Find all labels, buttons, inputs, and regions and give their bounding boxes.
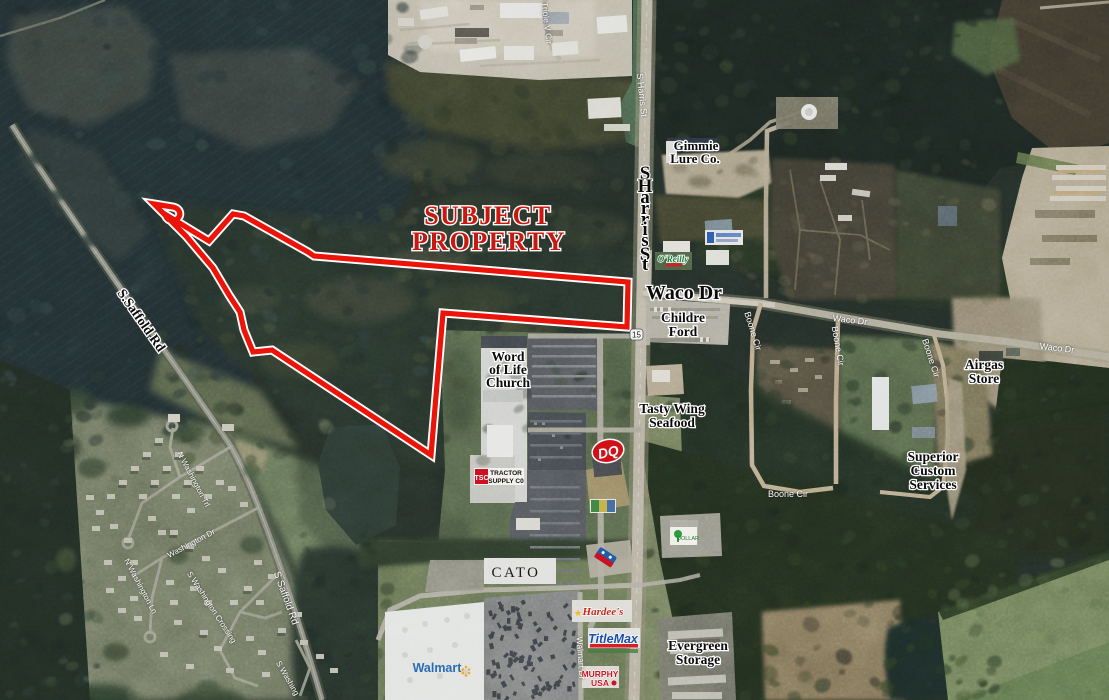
svg-text:Custom: Custom xyxy=(910,463,956,478)
svg-text:Ford: Ford xyxy=(669,324,698,339)
svg-text:SUPPLY C0: SUPPLY C0 xyxy=(488,478,524,485)
svg-text:TSC: TSC xyxy=(475,475,489,482)
svg-text:Hardee's: Hardee's xyxy=(582,606,624,618)
svg-text:t: t xyxy=(642,254,649,275)
svg-text:USA: USA xyxy=(591,678,609,688)
svg-text:Evergreen: Evergreen xyxy=(668,638,728,653)
svg-text:Tasty Wing: Tasty Wing xyxy=(639,401,705,416)
svg-text:Church: Church xyxy=(486,375,531,390)
svg-text:Storage: Storage xyxy=(676,652,720,667)
svg-text:Services: Services xyxy=(909,477,956,492)
svg-text:Childre: Childre xyxy=(661,310,705,325)
svg-text:Walmart: Walmart xyxy=(413,661,463,675)
svg-text:Airgas: Airgas xyxy=(965,357,1003,372)
svg-text:15: 15 xyxy=(632,331,641,340)
svg-text:TitleMax: TitleMax xyxy=(588,632,639,646)
svg-text:O'Reilly: O'Reilly xyxy=(658,254,689,264)
svg-text:SUBJECT: SUBJECT xyxy=(424,201,552,230)
svg-text:TRACTOR: TRACTOR xyxy=(490,470,522,477)
svg-text:Store: Store xyxy=(969,371,1000,386)
svg-text:DOLLAR: DOLLAR xyxy=(677,536,699,542)
svg-text:Waco Dr: Waco Dr xyxy=(646,282,722,304)
svg-text:★: ★ xyxy=(574,608,582,618)
svg-text:Lure Co.: Lure Co. xyxy=(670,151,720,166)
svg-text:Seafood: Seafood xyxy=(649,415,695,430)
svg-text:Superior: Superior xyxy=(907,449,958,464)
svg-text:PROPERTY: PROPERTY xyxy=(412,227,566,256)
svg-text:CATO: CATO xyxy=(492,565,541,581)
svg-text:Boone Cir: Boone Cir xyxy=(768,489,808,499)
